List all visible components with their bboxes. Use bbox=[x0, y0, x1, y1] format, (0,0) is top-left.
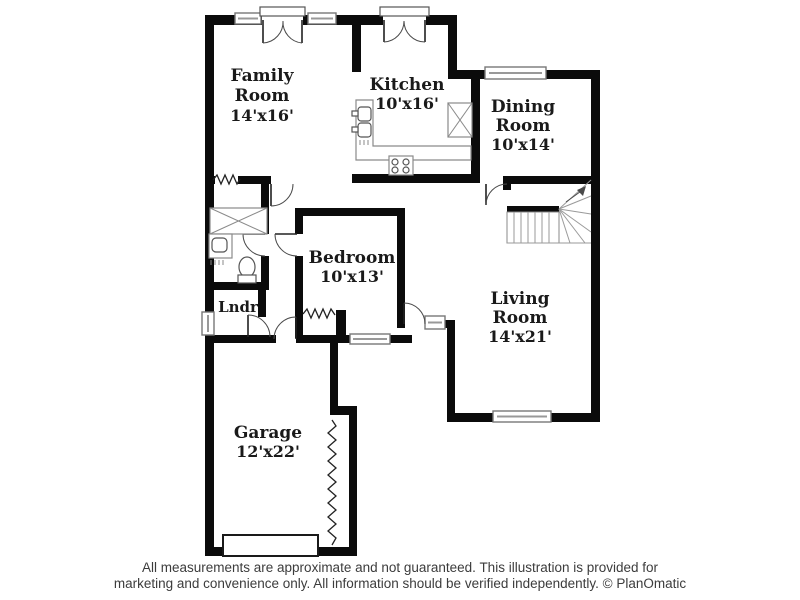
door-arc-icon bbox=[274, 317, 296, 339]
window-icon bbox=[493, 411, 551, 422]
door-arc-icon bbox=[271, 184, 293, 206]
window-icon bbox=[202, 312, 214, 335]
room-label-laundry: Lndr bbox=[218, 298, 259, 316]
svg-text:Bedroom: Bedroom bbox=[309, 248, 396, 268]
toilet-icon bbox=[238, 257, 256, 283]
svg-text:12'x22': 12'x22' bbox=[236, 442, 300, 461]
room-label-dining-room: Dining Room 10'x14' bbox=[491, 97, 555, 154]
svg-text:Room: Room bbox=[493, 308, 548, 328]
svg-text:Dining: Dining bbox=[491, 97, 555, 117]
svg-text:Kitchen: Kitchen bbox=[370, 75, 445, 95]
room-label-bedroom: Bedroom 10'x13' bbox=[309, 248, 396, 286]
svg-text:10'x13': 10'x13' bbox=[320, 267, 384, 286]
disclaimer-text: All measurements are approximate and not… bbox=[0, 560, 800, 592]
closet-rod-icon bbox=[213, 175, 240, 184]
bathroom-fixtures bbox=[209, 208, 267, 283]
svg-text:14'x16': 14'x16' bbox=[230, 106, 294, 125]
disclaimer-line-1: All measurements are approximate and not… bbox=[0, 560, 800, 576]
svg-text:Family: Family bbox=[231, 66, 295, 86]
room-label-living-room: Living Room 14'x21' bbox=[488, 289, 552, 346]
door-arc-icon bbox=[404, 303, 425, 324]
door-arc-icon bbox=[248, 315, 270, 337]
room-label-kitchen: Kitchen 10'x16' bbox=[370, 75, 445, 113]
stove-icon bbox=[389, 156, 413, 175]
garage-door-icon bbox=[223, 535, 318, 556]
svg-text:10'x16': 10'x16' bbox=[375, 94, 439, 113]
french-door-icon bbox=[260, 7, 305, 43]
floor-plan-page: Family Room 14'x16' Kitchen 10'x16' Dini… bbox=[0, 0, 800, 600]
bathtub-icon bbox=[210, 208, 267, 234]
door-icons bbox=[243, 7, 507, 339]
disclaimer-line-2: marketing and convenience only. All info… bbox=[0, 576, 800, 592]
window-icon bbox=[308, 13, 336, 24]
window-icon bbox=[235, 13, 261, 24]
front-step-icon bbox=[425, 316, 445, 329]
svg-text:Living: Living bbox=[491, 289, 550, 309]
svg-text:Garage: Garage bbox=[234, 423, 302, 443]
refrigerator-icon bbox=[448, 103, 472, 137]
stairs-icon bbox=[507, 180, 591, 243]
french-door-icon bbox=[380, 7, 429, 42]
svg-text:Room: Room bbox=[235, 86, 290, 106]
room-label-family-room: Family Room 14'x16' bbox=[230, 66, 295, 125]
svg-text:Lndr: Lndr bbox=[218, 298, 259, 316]
garage-shelf-icon bbox=[328, 420, 336, 545]
door-arc-icon bbox=[243, 234, 265, 256]
floor-plan-drawing: Family Room 14'x16' Kitchen 10'x16' Dini… bbox=[0, 0, 800, 600]
window-icon bbox=[350, 334, 390, 344]
svg-text:14'x21': 14'x21' bbox=[488, 327, 552, 346]
door-arc-icon bbox=[275, 234, 297, 256]
svg-text:Room: Room bbox=[496, 116, 551, 136]
window-icon bbox=[485, 67, 546, 79]
svg-text:10'x14': 10'x14' bbox=[491, 135, 555, 154]
room-label-garage: Garage 12'x22' bbox=[234, 423, 302, 461]
closet-rod-icon bbox=[303, 309, 335, 318]
